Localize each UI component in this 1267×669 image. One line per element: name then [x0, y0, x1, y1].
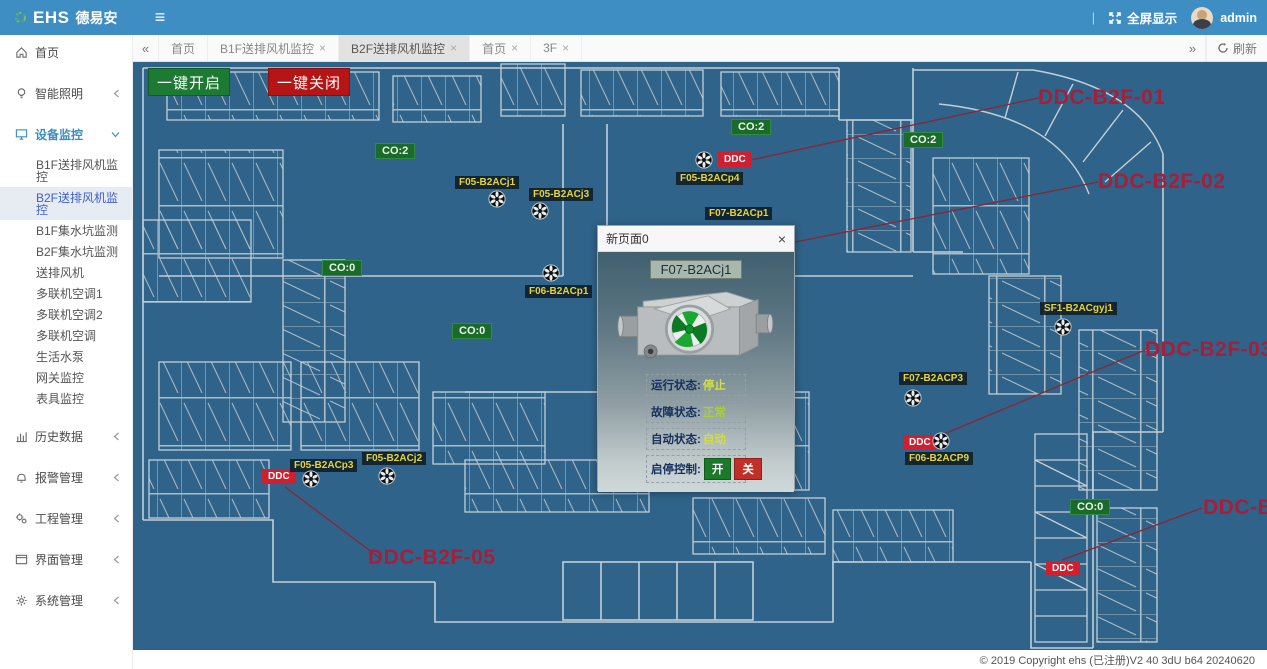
sidebar-item-engineering[interactable]: 工程管理	[0, 501, 132, 536]
fan-icon[interactable]	[488, 190, 506, 208]
co-sensor-label: CO:0	[322, 260, 362, 276]
co-sensor-label: CO:0	[452, 323, 492, 339]
tab-close-icon[interactable]: ×	[319, 41, 326, 55]
stop-button[interactable]: 关	[734, 458, 762, 480]
run-status-value: 停止	[703, 377, 726, 393]
expand-icon	[1109, 12, 1121, 24]
tab-label: 首页	[482, 40, 506, 57]
sidebar-item-label: 历史数据	[35, 428, 83, 445]
sidebar-item-alarm[interactable]: 报警管理	[0, 460, 132, 495]
auto-status-label: 自动状态:	[651, 431, 701, 447]
auto-status-value: 自动	[703, 431, 726, 447]
tab-label: B2F送排风机监控	[351, 40, 445, 57]
dialog-title-bar[interactable]: 新页面0 ×	[598, 226, 794, 252]
tab-bar: « 首页 B1F送排风机监控× B2F送排风机监控× 首页× 3F× » 刷新	[133, 35, 1267, 62]
fullscreen-button[interactable]: 全屏显示	[1109, 8, 1177, 27]
equipment-label[interactable]: F05-B2ACj2	[362, 452, 426, 465]
fan-icon[interactable]	[1054, 318, 1072, 336]
chevron-left-icon	[113, 596, 120, 605]
bell-icon	[15, 471, 28, 484]
start-button[interactable]: 开	[704, 458, 732, 480]
username: admin	[1220, 11, 1257, 25]
dialog-title: 新页面0	[606, 230, 649, 247]
sidebar-item-label: 智能照明	[35, 85, 83, 102]
submenu-vrf[interactable]: 多联机空调	[0, 325, 132, 346]
header-right: | 全屏显示 admin	[1092, 0, 1257, 35]
submenu-b1f-sump[interactable]: B1F集水坑监测	[0, 220, 132, 241]
sidebar-item-label: 设备监控	[35, 126, 83, 143]
fan-icon[interactable]	[932, 432, 950, 450]
refresh-button[interactable]: 刷新	[1206, 35, 1267, 61]
sidebar-toggle-button[interactable]: ≡	[142, 0, 178, 35]
fan-icon[interactable]	[378, 467, 396, 485]
tab-home-1[interactable]: 首页	[159, 35, 208, 61]
fan-unit-image	[617, 281, 775, 369]
equipment-label[interactable]: F06-B2ACp1	[525, 285, 592, 298]
device-monitor-submenu: B1F送排风机监控 B2F送排风机监控 B1F集水坑监测 B2F集水坑监测 送排…	[0, 152, 132, 413]
sidebar-item-label: 报警管理	[35, 469, 83, 486]
chevron-left-icon	[113, 432, 120, 441]
brand-name-cn: 德易安	[75, 8, 117, 28]
dialog-body: F07-B2ACj1	[598, 252, 794, 492]
tab-b2f-fan[interactable]: B2F送排风机监控×	[339, 35, 470, 61]
equipment-label[interactable]: F07-B2ACp1	[705, 207, 772, 220]
submenu-b2f-sump[interactable]: B2F集水坑监测	[0, 241, 132, 262]
submenu-b1f-fan[interactable]: B1F送排风机监控	[0, 154, 132, 187]
user-menu[interactable]: admin	[1191, 7, 1257, 29]
callout-ddc-b2f-04: DDC-B2F-04	[1203, 496, 1267, 520]
sidebar-item-system[interactable]: 系统管理	[0, 583, 132, 618]
brand-logo: EHS 德易安	[0, 0, 133, 35]
tabs-scroll-right-button[interactable]: »	[1180, 35, 1206, 61]
tab-label: B1F送排风机监控	[220, 40, 314, 57]
chevron-left-icon	[113, 473, 120, 482]
tab-b1f-fan[interactable]: B1F送排风机监控×	[208, 35, 339, 61]
submenu-vrf-2[interactable]: 多联机空调2	[0, 304, 132, 325]
submenu-b2f-fan[interactable]: B2F送排风机监控	[0, 187, 132, 220]
header-divider: |	[1092, 10, 1095, 25]
top-header: EHS 德易安 ≡ | 全屏显示 admin	[0, 0, 1267, 35]
chevron-down-icon	[111, 131, 120, 138]
run-status-label: 运行状态:	[651, 377, 701, 393]
fan-icon[interactable]	[302, 470, 320, 488]
device-name-label: F07-B2ACj1	[650, 260, 743, 279]
sidebar-item-label: 首页	[35, 44, 59, 61]
tab-home-2[interactable]: 首页×	[470, 35, 531, 61]
footer: © 2019 Copyright ehs (已注册)V2 40 3dU b64 …	[133, 650, 1267, 669]
device-icon	[15, 128, 28, 141]
co-sensor-label: CO:2	[375, 143, 415, 159]
auto-status-row: 自动状态: 自动	[646, 428, 746, 450]
chevron-left-icon	[113, 555, 120, 564]
callout-ddc-b2f-05: DDC-B2F-05	[368, 546, 496, 570]
fan-icon[interactable]	[542, 264, 560, 282]
equipment-label[interactable]: F05-B2ACp4	[676, 172, 743, 185]
sidebar-item-label: 系统管理	[35, 592, 83, 609]
gear-icon	[15, 594, 28, 607]
fan-icon[interactable]	[531, 202, 549, 220]
chart-icon	[15, 430, 28, 443]
double-left-arrow-icon: «	[142, 41, 149, 56]
equipment-label[interactable]: F05-B2ACp3	[290, 459, 357, 472]
device-dialog: 新页面0 × F07-B2ACj1	[597, 225, 795, 491]
equipment-label[interactable]: F07-B2ACP3	[899, 372, 967, 385]
refresh-label: 刷新	[1233, 40, 1257, 57]
tab-3f[interactable]: 3F×	[531, 35, 582, 61]
submenu-water-pump[interactable]: 生活水泵	[0, 346, 132, 367]
ddc-box-4[interactable]: DDC	[1046, 561, 1080, 576]
open-all-button[interactable]: 一键开启	[148, 68, 230, 96]
tabs-scroll-left-button[interactable]: «	[133, 35, 159, 61]
close-all-button[interactable]: 一键关闭	[268, 68, 350, 96]
callout-ddc-b2f-02: DDC-B2F-02	[1098, 170, 1226, 194]
co-sensor-label: CO:2	[903, 132, 943, 148]
start-stop-control-row: 启停控制: 开 关	[646, 455, 746, 483]
sidebar-item-device-monitor[interactable]: 设备监控	[0, 117, 132, 152]
double-right-arrow-icon: »	[1189, 41, 1196, 56]
fullscreen-label: 全屏显示	[1127, 8, 1177, 27]
control-label: 启停控制:	[651, 461, 701, 477]
equipment-label[interactable]: SF1-B2ACgyj1	[1040, 302, 1117, 315]
submenu-meters[interactable]: 表具监控	[0, 388, 132, 409]
chevron-left-icon	[113, 89, 120, 98]
brand-ring-icon	[14, 11, 27, 24]
sidebar-item-label: 工程管理	[35, 510, 83, 527]
sidebar-item-home[interactable]: 首页	[0, 35, 132, 70]
ddc-box-1[interactable]: DDC	[718, 152, 752, 167]
tab-close-icon[interactable]: ×	[511, 41, 518, 55]
sidebar-nav: 首页 智能照明 设备监控 B1F送排风机监控 B2F送排风机监控 B1F集水坑监…	[0, 35, 133, 669]
bulb-icon	[15, 87, 28, 100]
submenu-fans[interactable]: 送排风机	[0, 262, 132, 283]
fault-status-row: 故障状态: 正常	[646, 401, 746, 423]
co-sensor-label: CO:0	[1070, 499, 1110, 515]
tab-label: 首页	[171, 40, 195, 57]
fan-icon[interactable]	[695, 151, 713, 169]
window-icon	[15, 553, 28, 566]
tab-label: 3F	[543, 41, 557, 55]
sidebar-item-interface[interactable]: 界面管理	[0, 542, 132, 577]
equipment-label[interactable]: F06-B2ACP9	[905, 452, 973, 465]
fault-status-label: 故障状态:	[651, 404, 701, 420]
equipment-label[interactable]: F05-B2ACj3	[529, 188, 593, 201]
sidebar-item-lighting[interactable]: 智能照明	[0, 76, 132, 111]
submenu-gateway[interactable]: 网关监控	[0, 367, 132, 388]
tab-bar-right: » 刷新	[1180, 35, 1267, 61]
copyright-text: © 2019 Copyright ehs (已注册)V2 40 3dU b64 …	[980, 652, 1255, 668]
sidebar-item-label: 界面管理	[35, 551, 83, 568]
user-avatar	[1191, 7, 1213, 29]
run-status-row: 运行状态: 停止	[646, 374, 746, 396]
home-icon	[15, 46, 28, 59]
app: EHS 德易安 ≡ | 全屏显示 admin	[0, 0, 1267, 669]
co-sensor-label: CO:2	[731, 119, 771, 135]
floor-plan-canvas: 一键开启 一键关闭 CO:2 CO:2 CO:2 CO:0 CO:0 CO:0 …	[133, 62, 1267, 650]
equipment-label[interactable]: F05-B2ACj1	[455, 176, 519, 189]
tab-close-icon[interactable]: ×	[562, 41, 569, 55]
callout-ddc-b2f-01: DDC-B2F-01	[1038, 86, 1166, 110]
gears-icon	[15, 512, 28, 525]
submenu-vrf-1[interactable]: 多联机空调1	[0, 283, 132, 304]
sidebar-item-history[interactable]: 历史数据	[0, 419, 132, 454]
fault-status-value: 正常	[703, 404, 726, 420]
tab-close-icon[interactable]: ×	[450, 41, 457, 55]
fan-icon[interactable]	[904, 389, 922, 407]
hamburger-icon: ≡	[155, 7, 166, 28]
dialog-close-button[interactable]: ×	[778, 231, 786, 247]
chevron-left-icon	[113, 514, 120, 523]
brand-name-en: EHS	[33, 8, 69, 28]
callout-ddc-b2f-03: DDC-B2F-03	[1145, 338, 1267, 362]
refresh-icon	[1217, 42, 1229, 54]
